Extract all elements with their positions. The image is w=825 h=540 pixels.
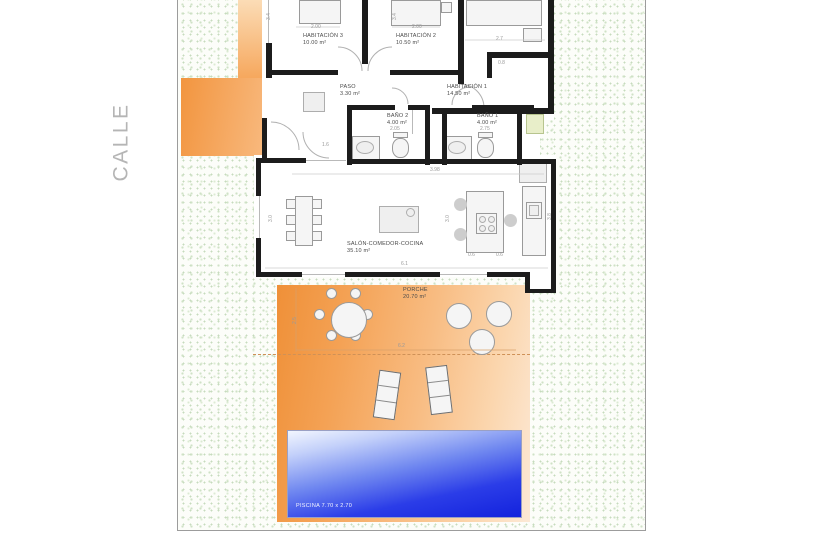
dimension-label: 2.75 xyxy=(480,126,490,132)
dimension-label: 3.0 xyxy=(268,215,274,222)
dimension-label: 2.00 xyxy=(412,24,422,30)
dimension-labels-layer: 2.002.002.73.43.40.81.62.052.753.983.03.… xyxy=(0,0,825,540)
dimension-label: 2.5 xyxy=(292,317,298,324)
dimension-label: 2.00 xyxy=(311,24,321,30)
dimension-label: 1.6 xyxy=(322,142,329,148)
dimension-label: 6.2 xyxy=(398,343,405,349)
floor-plan-canvas: CALLE PISCINA 7.70 x 2.70 xyxy=(0,0,825,540)
dimension-label: 3.98 xyxy=(430,167,440,173)
dimension-label: 3.4 xyxy=(266,13,272,20)
dimension-label: 0.8 xyxy=(498,60,505,66)
dimension-label: 3.0 xyxy=(445,215,451,222)
dimension-label: 0.6 xyxy=(496,252,503,258)
dimension-label: 6.1 xyxy=(401,261,408,267)
dimension-label: 2.7 xyxy=(496,36,503,42)
dimension-label: 3.4 xyxy=(392,13,398,20)
dimension-label: 0.6 xyxy=(468,252,475,258)
dimension-label: 2.05 xyxy=(390,126,400,132)
dimension-label: 3.8 xyxy=(547,213,553,220)
